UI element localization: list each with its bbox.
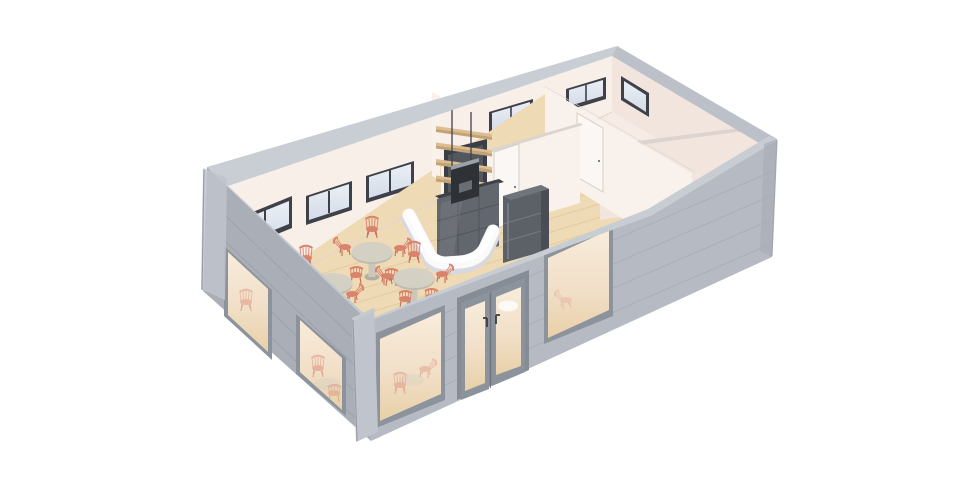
door-knob <box>514 186 516 188</box>
door-knob <box>598 160 600 162</box>
isometric-cafe-floorplan <box>0 0 960 482</box>
door-interior-view <box>498 301 518 312</box>
door-leaf-right-glass <box>496 287 521 375</box>
espresso-machine <box>451 158 479 204</box>
west-corner-post <box>201 168 227 300</box>
floorplan-render-canvas <box>0 0 960 482</box>
fridge-side <box>541 185 549 256</box>
door-leaf-left-glass <box>465 301 485 391</box>
south-corner-post <box>352 308 378 442</box>
